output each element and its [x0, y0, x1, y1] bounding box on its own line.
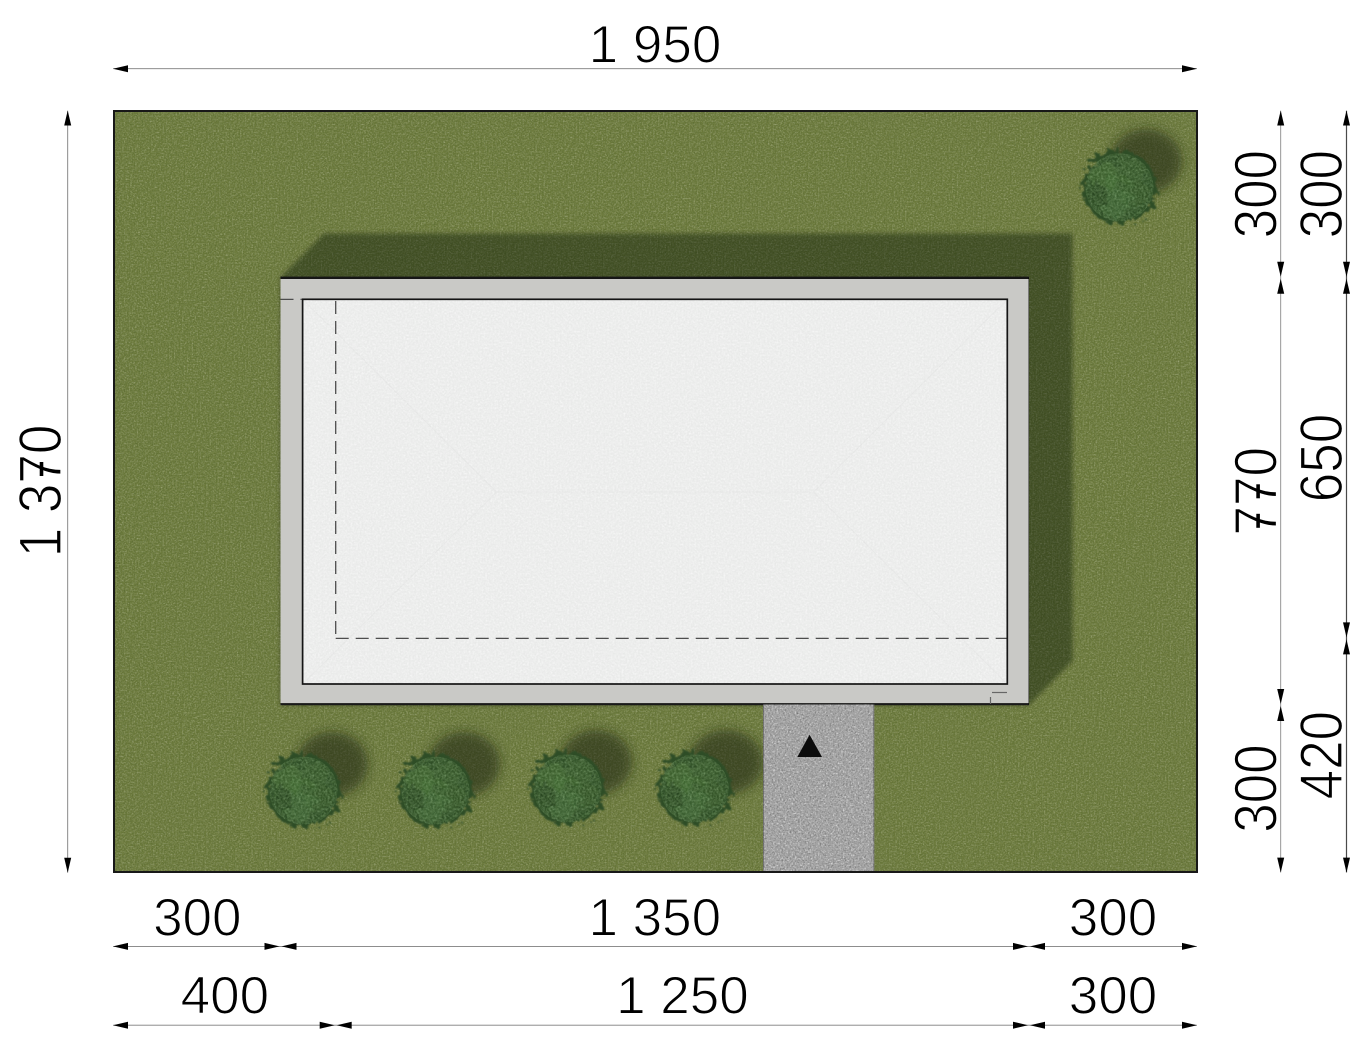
svg-text:300: 300 — [1069, 967, 1157, 1026]
svg-text:300: 300 — [153, 888, 241, 947]
svg-text:300: 300 — [1222, 150, 1289, 238]
svg-text:300: 300 — [1288, 150, 1355, 238]
svg-text:400: 400 — [181, 967, 269, 1026]
svg-text:1 950: 1 950 — [589, 15, 722, 74]
svg-text:1 250: 1 250 — [616, 967, 749, 1026]
svg-text:1 370: 1 370 — [7, 425, 74, 558]
svg-text:770: 770 — [1222, 447, 1289, 535]
svg-text:1 350: 1 350 — [588, 888, 721, 947]
svg-text:300: 300 — [1222, 744, 1289, 832]
svg-text:650: 650 — [1288, 414, 1355, 502]
svg-text:420: 420 — [1288, 711, 1355, 799]
svg-text:300: 300 — [1069, 888, 1157, 947]
